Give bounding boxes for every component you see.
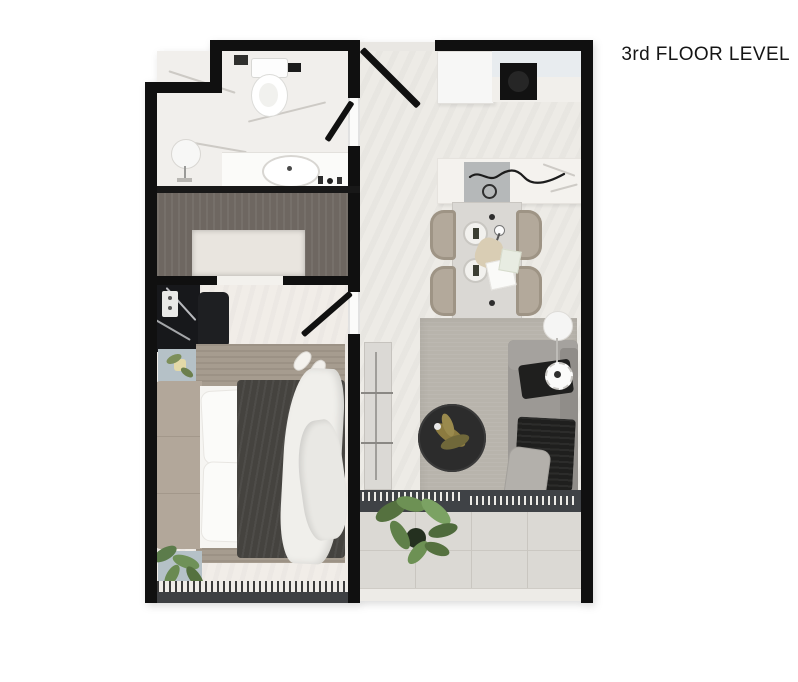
pendant-lamp-bulb xyxy=(554,371,561,378)
console-divider xyxy=(375,352,377,480)
plate-food xyxy=(473,265,479,276)
wall-bath-bottom xyxy=(157,186,360,193)
bath-lamp-base xyxy=(177,178,192,182)
headboard-seam xyxy=(153,436,202,437)
wall-mid-piece xyxy=(348,276,360,292)
floor-lamp-shade xyxy=(543,311,573,341)
bedroom-window-band xyxy=(157,592,348,603)
floor-plan-page: 3rd FLOOR LEVEL xyxy=(0,0,798,682)
entry-threshold xyxy=(360,42,435,51)
wall-mid-upper xyxy=(348,193,360,283)
closet-opening xyxy=(217,276,283,285)
floor-plan xyxy=(0,0,798,682)
kitchen-cabinet xyxy=(437,51,494,104)
napkin xyxy=(498,248,522,273)
curtain-speckle xyxy=(470,496,578,505)
desk-chair xyxy=(198,292,229,348)
cutlery-dot xyxy=(489,300,495,306)
bath-lamp-shade xyxy=(171,139,201,169)
wall-right xyxy=(581,40,593,603)
wall-bedroom-top-left xyxy=(157,276,217,285)
cutlery-dot xyxy=(489,214,495,220)
wall-bath-right-upper xyxy=(348,40,360,98)
wall-top-right xyxy=(435,40,593,51)
switch-dot xyxy=(168,306,172,310)
switch-dot xyxy=(168,296,172,300)
toiletry-bottle-icon xyxy=(318,176,323,184)
coffee-table-cup xyxy=(434,423,441,430)
balcony-railing xyxy=(360,588,581,601)
wall-left xyxy=(145,82,157,603)
marble-vein xyxy=(155,319,191,341)
toilet-seat xyxy=(259,83,278,107)
decor-squiggle-icon xyxy=(466,166,570,186)
toiletry-bottle-icon xyxy=(337,177,342,184)
bedroom-door-gap xyxy=(350,292,358,334)
cooktop xyxy=(500,63,537,100)
bedroom-window-curtain xyxy=(157,581,348,592)
closet-recess xyxy=(192,230,305,276)
wall-top-left xyxy=(210,40,352,51)
wall-vent-icon xyxy=(234,55,248,65)
console-shelf-line xyxy=(361,392,393,394)
faucet-icon xyxy=(287,166,292,171)
dining-chair xyxy=(430,266,456,316)
headboard-seam xyxy=(153,493,202,494)
plant-leaf xyxy=(179,366,194,380)
plate-food xyxy=(473,228,479,239)
console-shelf-line xyxy=(361,442,393,444)
tv-console xyxy=(364,342,392,490)
toiletry-bottle-icon xyxy=(327,178,333,184)
dining-chair xyxy=(430,210,456,260)
light-switch xyxy=(162,291,178,317)
headboard xyxy=(153,381,202,549)
island-faucet-icon xyxy=(482,184,497,199)
sink-basin xyxy=(262,155,320,188)
dining-chair xyxy=(516,266,542,316)
toilet-bowl xyxy=(251,74,288,117)
wall-mid-lower xyxy=(348,334,360,603)
cooktop-burner xyxy=(508,71,529,92)
